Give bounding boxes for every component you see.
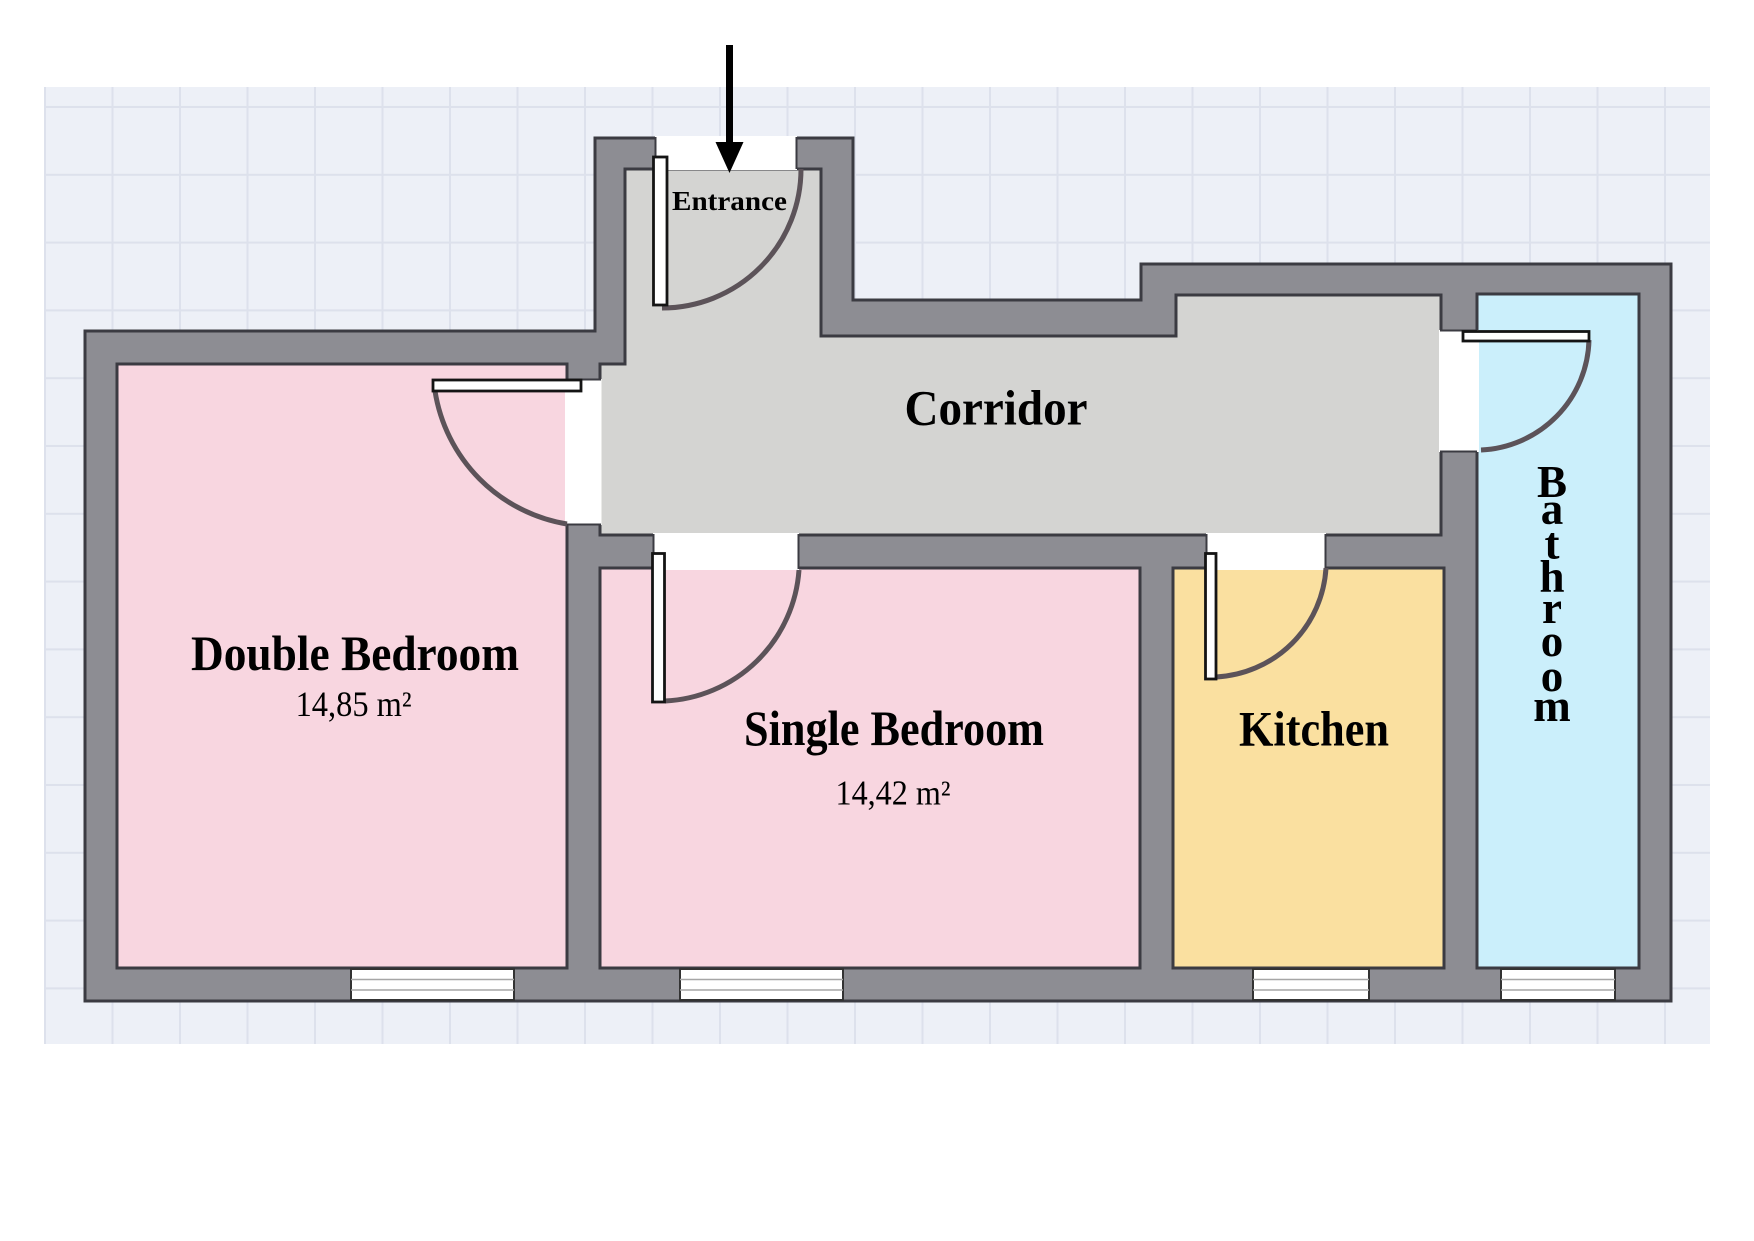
svg-text:14,85 m²: 14,85 m² [296,684,412,724]
svg-text:Kitchen: Kitchen [1239,702,1389,757]
svg-text:Corridor: Corridor [905,381,1088,436]
svg-text:Single Bedroom: Single Bedroom [744,700,1044,756]
svg-text:14,42 m²: 14,42 m² [836,774,951,813]
svg-text:m: m [1533,681,1571,731]
svg-text:Double Bedroom: Double Bedroom [191,625,519,681]
svg-text:Entrance: Entrance [672,185,787,216]
